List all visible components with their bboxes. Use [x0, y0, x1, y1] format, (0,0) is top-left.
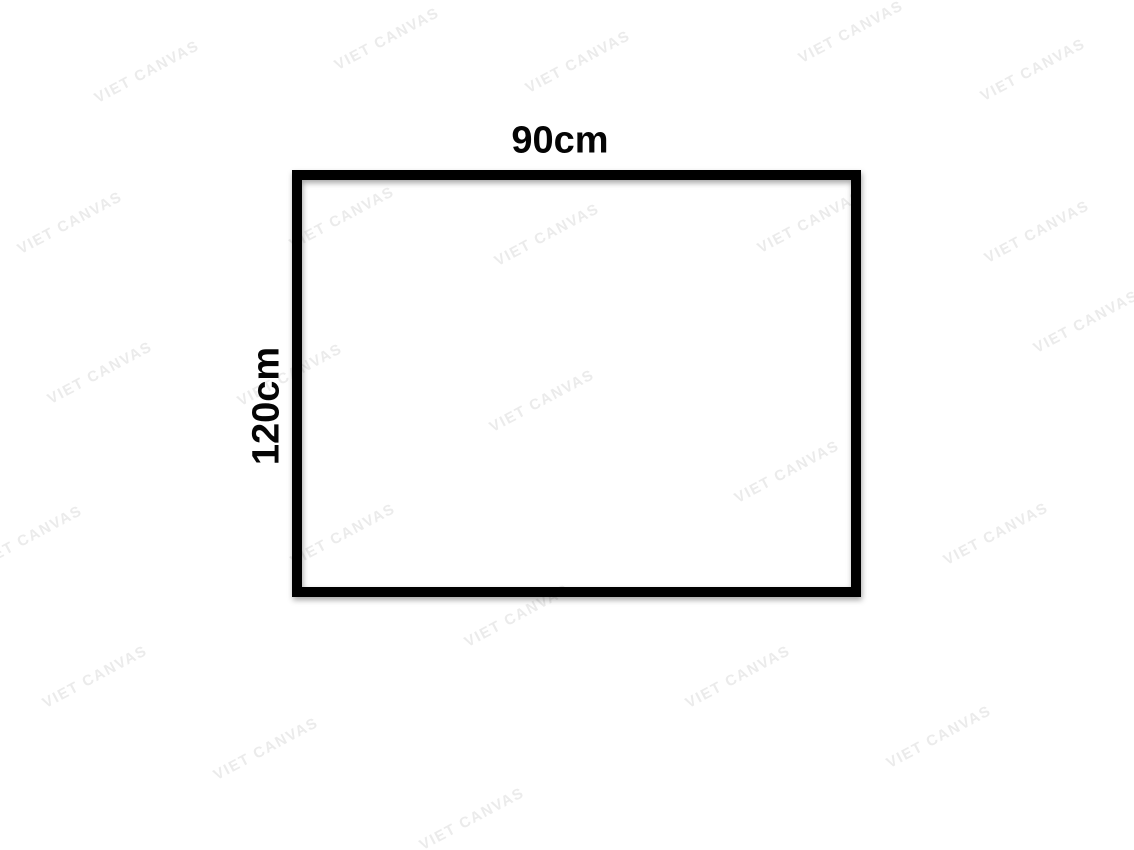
width-dimension-label: 90cm [511, 120, 608, 163]
canvas-rectangle [297, 175, 856, 592]
height-dimension-label: 120cm [246, 347, 289, 465]
canvas-dimension-diagram: VIET CANVASVIET CANVASVIET CANVASVIET CA… [0, 0, 1134, 850]
